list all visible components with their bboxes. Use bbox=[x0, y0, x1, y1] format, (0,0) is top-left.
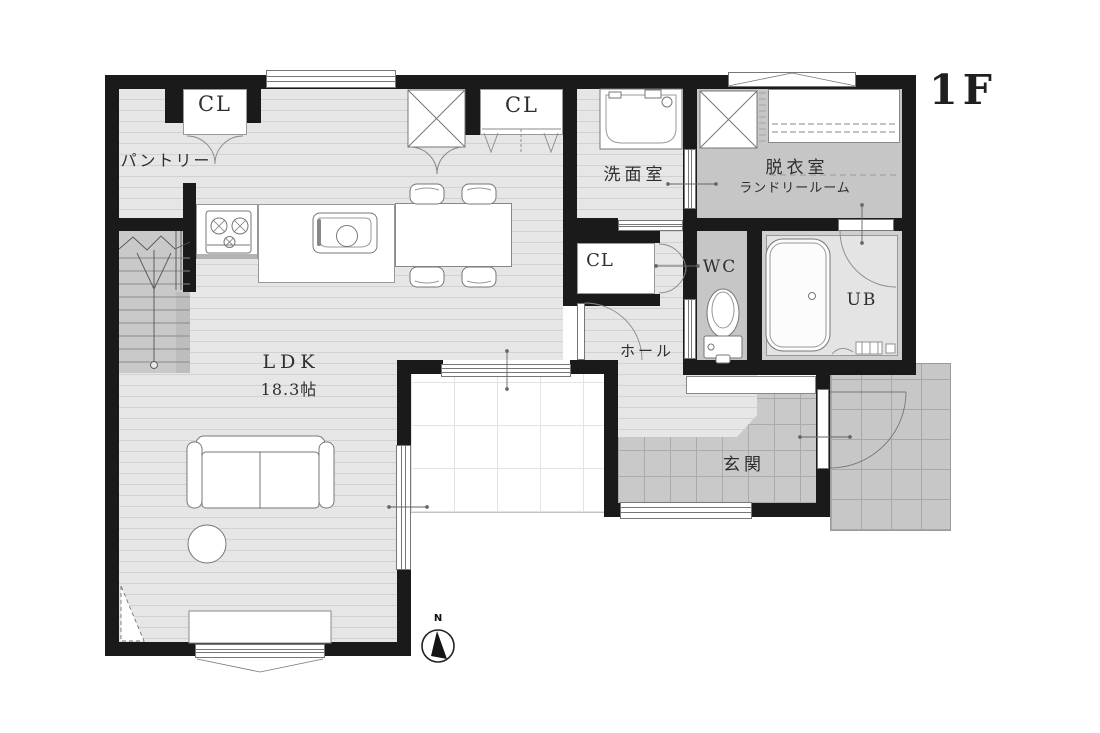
room-label-washroom: 洗面室 bbox=[604, 160, 667, 185]
window-ldk-bottom-marks bbox=[197, 659, 323, 672]
bath-floor bbox=[766, 235, 898, 356]
compass-north-label: N bbox=[434, 613, 442, 624]
room-label-entrance: 玄関 bbox=[723, 450, 765, 475]
kitchen-stove-counter bbox=[196, 204, 258, 259]
wall-closet1-right-stub bbox=[247, 89, 261, 123]
wall-hall-top-stub bbox=[577, 218, 618, 231]
entrance-door-leaf bbox=[817, 389, 829, 469]
kitchen-counter-edge bbox=[197, 254, 257, 259]
wall-closet1-left-stub bbox=[165, 89, 183, 123]
room-label-wc: WC bbox=[703, 257, 737, 277]
kitchen-island bbox=[258, 204, 395, 283]
wall-pantry-stairs bbox=[119, 218, 183, 231]
room-label-pantry: パントリー bbox=[121, 147, 212, 171]
terrace-deck bbox=[411, 374, 604, 513]
compass bbox=[422, 630, 454, 662]
dining-table bbox=[395, 203, 512, 267]
window-kitchen-top bbox=[266, 70, 396, 88]
room-label-closet-1: CL bbox=[198, 92, 232, 116]
wall-bath-bottom bbox=[683, 360, 916, 375]
sliding-door-washroom-laundry bbox=[684, 149, 696, 209]
wall-left bbox=[105, 75, 119, 656]
sliding-door-wc bbox=[684, 299, 696, 359]
wall-closet3-top bbox=[563, 231, 660, 243]
wall-terrace-top-left bbox=[397, 360, 443, 374]
room-label-closet-3: CL bbox=[586, 250, 614, 271]
wall-right bbox=[902, 75, 916, 375]
shoe-cabinet bbox=[686, 376, 816, 394]
room-label-ub: UB bbox=[847, 290, 878, 310]
stairs-lower-strip bbox=[176, 292, 190, 373]
floor-plan-1f: パントリー CL CL CL 洗面室 脱衣室 ランドリールーム WC UB ホー… bbox=[0, 0, 1100, 733]
window-ldk-terrace bbox=[396, 445, 411, 570]
wc-floor bbox=[697, 231, 747, 360]
room-label-ldk-size: 18.3帖 bbox=[261, 376, 318, 400]
room-label-ldk: LDK bbox=[262, 351, 319, 373]
window-terrace-top bbox=[441, 364, 571, 377]
floor-title: 1F bbox=[929, 66, 997, 114]
room-label-hall: ホール bbox=[620, 340, 674, 361]
room-label-closet-2: CL bbox=[505, 93, 539, 117]
wall-terrace-right bbox=[604, 360, 618, 517]
room-label-dressing: 脱衣室 bbox=[766, 153, 829, 178]
wall-stairs-right bbox=[183, 183, 196, 292]
window-entrance-bottom bbox=[620, 502, 752, 519]
room-label-laundry: ランドリールーム bbox=[739, 177, 851, 196]
window-ldk-bottom bbox=[195, 644, 325, 658]
wall-wc-bath bbox=[747, 231, 762, 360]
wall-washroom-left bbox=[563, 89, 577, 306]
hall-door-leaf bbox=[577, 303, 585, 360]
bath-door-leaf bbox=[838, 219, 894, 231]
porch-tile-floor bbox=[830, 363, 951, 531]
window-laundry-top bbox=[728, 72, 856, 87]
laundry-counter bbox=[768, 89, 900, 143]
wall-closet2-left-stub bbox=[465, 89, 480, 135]
sliding-door-washroom bbox=[618, 220, 683, 231]
